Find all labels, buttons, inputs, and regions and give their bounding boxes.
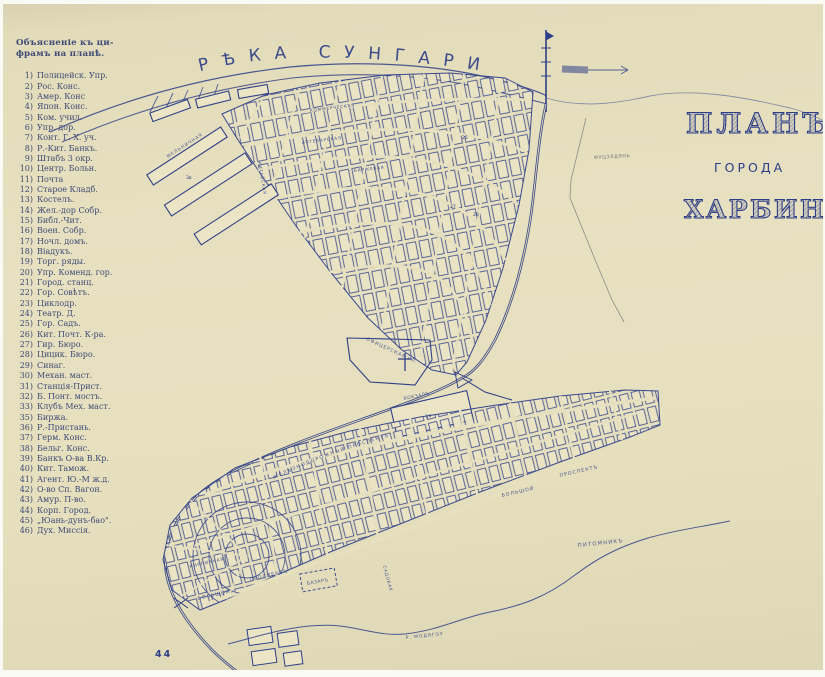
legend-item-label: Центр. Больн. (37, 164, 97, 174)
legend-item-label: Город. станц. (37, 278, 94, 288)
legend-item-label: О-во Сп. Вагон. (37, 485, 102, 495)
legend-item-number: 10) (12, 164, 33, 174)
legend-item: 30) Механ. маст. (12, 371, 134, 381)
legend-item: 27) Гир. Бюро. (12, 340, 134, 350)
legend-item-number: 13) (12, 195, 33, 205)
legend-item-number: 40) (12, 464, 33, 474)
legend-item: 45) „Юань-дунъ-бао". (12, 516, 134, 526)
legend-item-number: 8) (12, 144, 33, 154)
legend-item-label: Гор. Садъ. (37, 319, 81, 329)
svg-text:25: 25 (462, 135, 468, 141)
svg-text:27: 27 (450, 204, 456, 210)
legend-item-label: Агент. Ю.-М ж.д. (37, 475, 110, 485)
legend-item: 44) Корп. Город. (12, 506, 134, 516)
legend-item-number: 24) (12, 309, 33, 319)
scanned-map-page: РѢКА СУНГАРИ (0, 0, 825, 677)
legend-item-number: 3) (12, 92, 33, 102)
legend-item-label: Амер. Конс (37, 92, 85, 102)
legend-item-number: 26) (12, 330, 33, 340)
title-line2: ГОРОДА (714, 160, 785, 175)
legend-item-number: 23) (12, 299, 33, 309)
legend-item-label: Жел.-дор Собр. (37, 206, 102, 216)
legend-item: 16) Воен. Собр. (12, 226, 134, 236)
legend-item-label: Театр. Д. (37, 309, 76, 319)
legend-item-label: Цицик. Бюро. (37, 350, 95, 360)
legend-item-label: Р.-Пристань. (37, 423, 91, 433)
legend-item-number: 30) (12, 371, 33, 381)
legend-item-label: Штабъ 3 окр. (37, 154, 93, 164)
legend-item-number: 1) (12, 71, 33, 81)
legend-item: 33) Клубъ Мех. маст. (12, 402, 134, 412)
legend-item-number: 16) (12, 226, 33, 236)
legend-item-label: Упр. Коменд. гор. (37, 268, 112, 278)
svg-text:ПИТОМНИКЪ: ПИТОМНИКЪ (578, 538, 624, 549)
legend-item-label: Циклодр. (37, 299, 77, 309)
map-legend: Объясненіе къ ци- фрамъ на планѣ. 1) Пол… (12, 38, 134, 537)
legend-item-label: Віадукъ. (37, 247, 72, 257)
legend-item: 5) Ком. учил. (12, 113, 134, 123)
district-new-town (163, 390, 660, 625)
legend-item-number: 41) (12, 475, 33, 485)
legend-item-number: 43) (12, 495, 33, 505)
legend-title: Объясненіе къ ци- фрамъ на планѣ. (16, 38, 134, 59)
legend-item-number: 29) (12, 361, 33, 371)
title-block: ПЛАНЪ ГОРОДА ХАРБИНА (684, 107, 825, 224)
legend-item: 20) Упр. Коменд. гор. (12, 268, 134, 278)
legend-item-label: Корп. Город. (37, 506, 91, 516)
legend-item-number: 22) (12, 288, 33, 298)
legend-item: 17) Ночл. домъ. (12, 237, 134, 247)
legend-item: 9) Штабъ 3 окр. (12, 154, 134, 164)
legend-item-label: Б. Понт. мостъ. (37, 392, 102, 402)
legend-item: 10) Центр. Больн. (12, 164, 134, 174)
legend-item-number: 32) (12, 392, 33, 402)
legend-item: 1) Полицейск. Упр. (12, 71, 134, 81)
legend-item-number: 35) (12, 413, 33, 423)
title-line1: ПЛАНЪ (686, 107, 825, 140)
legend-item: 28) Цицик. Бюро. (12, 350, 134, 360)
legend-item: 31) Станція-Прист. (12, 382, 134, 392)
legend-item: 40) Кит. Тамож. (12, 464, 134, 474)
river-label: РѢКА СУНГАРИ (196, 42, 494, 77)
legend-item-number: 2) (12, 82, 33, 92)
legend-item-number: 38) (12, 444, 33, 454)
legend-item-label: Рос. Конс. (37, 82, 80, 92)
legend-item: 43) Амур. П-во. (12, 495, 134, 505)
legend-item-number: 6) (12, 123, 33, 133)
legend-item-number: 5) (12, 113, 33, 123)
legend-item-label: Герм. Конс. (37, 433, 87, 443)
legend-item: 46) Дух. Миссія. (12, 526, 134, 536)
legend-item-label: Упр. дор. (37, 123, 76, 133)
legend-item: 13) Костелъ. (12, 195, 134, 205)
legend-item-number: 11) (12, 175, 33, 185)
legend-item: 12) Старое Кладб. (12, 185, 134, 195)
legend-item: 6) Упр. дор. (12, 123, 134, 133)
legend-item: 2) Рос. Конс. (12, 82, 134, 92)
legend-item: 3) Амер. Конс (12, 92, 134, 102)
legend-item-label: „Юань-дунъ-бао". (37, 516, 111, 526)
legend-item: 36) Р.-Пристань. (12, 423, 134, 433)
legend-item: 24) Театр. Д. (12, 309, 134, 319)
fudziadian-boundary (570, 118, 624, 322)
legend-item-number: 15) (12, 216, 33, 226)
page-number: 44 (155, 649, 172, 660)
legend-item-label: Костелъ. (37, 195, 74, 205)
legend-item: 21) Город. станц. (12, 278, 134, 288)
legend-item: 23) Циклодр. (12, 299, 134, 309)
scan-border-top (0, 0, 825, 4)
legend-item-number: 36) (12, 423, 33, 433)
legend-item-number: 14) (12, 206, 33, 216)
legend-item-label: Торг. ряды. (37, 257, 86, 267)
title-line3: ХАРБИНА (684, 195, 825, 224)
legend-item: 29) Синаг. (12, 361, 134, 371)
legend-item-label: Механ. маст. (37, 371, 92, 381)
legend-item: 22) Гор. Совѣтъ. (12, 288, 134, 298)
legend-item-number: 45) (12, 516, 33, 526)
legend-item-label: Гор. Совѣтъ. (37, 288, 90, 298)
legend-item-label: Кит. Почт. К-ра. (37, 330, 106, 340)
svg-text:ПРОСПЕКТЪ: ПРОСПЕКТЪ (559, 464, 599, 479)
legend-item-label: Биржа. (37, 413, 68, 423)
legend-item: 25) Гор. Садъ. (12, 319, 134, 329)
legend-item-number: 7) (12, 133, 33, 143)
legend-item-label: Станція-Прист. (37, 382, 102, 392)
legend-item-number: 18) (12, 247, 33, 257)
legend-item: 11) Почта (12, 175, 134, 185)
legend-item: 7) Конт. Г. Х. уч. (12, 133, 134, 143)
legend-item-label: Амур. П-во. (37, 495, 86, 505)
legend-item-number: 20) (12, 268, 33, 278)
legend-item-label: Клубъ Мех. маст. (37, 402, 110, 412)
legend-item-label: Старое Кладб. (37, 185, 98, 195)
legend-item-number: 46) (12, 526, 33, 536)
legend-item-number: 31) (12, 382, 33, 392)
svg-text:БАЗАРЪ: БАЗАРЪ (306, 577, 329, 587)
legend-item-number: 25) (12, 319, 33, 329)
svg-text:28: 28 (473, 212, 479, 218)
legend-item: 37) Герм. Конс. (12, 433, 134, 443)
legend-item-number: 17) (12, 237, 33, 247)
legend-item: 15) Библ.-Чит. (12, 216, 134, 226)
flow-arrow-icon (562, 66, 628, 74)
scan-border-bottom (0, 670, 825, 677)
legend-item-label: Р.-Кит. Банкъ. (37, 144, 97, 154)
legend-item-label: Гир. Бюро. (37, 340, 83, 350)
legend-item-number: 37) (12, 433, 33, 443)
legend-item-label: Бельг. Конс. (37, 444, 90, 454)
legend-item: 41) Агент. Ю.-М ж.д. (12, 475, 134, 485)
legend-item-number: 4) (12, 102, 33, 112)
legend-item-label: Ком. учил. (37, 113, 82, 123)
legend-item-label: Япон. Конс. (37, 102, 87, 112)
legend-item-label: Ночл. домъ. (37, 237, 88, 247)
legend-item-number: 27) (12, 340, 33, 350)
legend-item-label: Кит. Тамож. (37, 464, 89, 474)
fudziadian-label: ФУЦЗЯДЯНЬ (594, 153, 631, 161)
legend-item-number: 39) (12, 454, 33, 464)
district-pristan (222, 73, 533, 375)
legend-item-number: 44) (12, 506, 33, 516)
legend-item-label: Полицейск. Упр. (37, 71, 108, 81)
legend-item-label: Дух. Миссія. (37, 526, 90, 536)
legend-item-label: Синаг. (37, 361, 65, 371)
legend-item-number: 21) (12, 278, 33, 288)
legend-item: 39) Банкъ О-ва В.Кр. (12, 454, 134, 464)
legend-item-number: 42) (12, 485, 33, 495)
legend-item: 26) Кит. Почт. К-ра. (12, 330, 134, 340)
legend-item: 38) Бельг. Конс. (12, 444, 134, 454)
legend-item-number: 12) (12, 185, 33, 195)
legend-item: 35) Биржа. (12, 413, 134, 423)
legend-item: 19) Торг. ряды. (12, 257, 134, 267)
legend-items: 1) Полицейск. Упр. 2) Рос. Конс. 3) Амер… (12, 71, 134, 536)
legend-item: 8) Р.-Кит. Банкъ. (12, 144, 134, 154)
legend-item: 14) Жел.-дор Собр. (12, 206, 134, 216)
legend-item-label: Воен. Собр. (37, 226, 86, 236)
legend-item-number: 33) (12, 402, 33, 412)
scan-border-left (0, 0, 3, 677)
legend-item-number: 19) (12, 257, 33, 267)
legend-item-label: Конт. Г. Х. уч. (37, 133, 97, 143)
legend-item: 4) Япон. Конс. (12, 102, 134, 112)
legend-item: 42) О-во Сп. Вагон. (12, 485, 134, 495)
legend-item-label: Банкъ О-ва В.Кр. (37, 454, 109, 464)
svg-text:Р. МОДЯГОУ: Р. МОДЯГОУ (406, 631, 444, 641)
svg-text:3в: 3в (186, 175, 192, 181)
svg-text:САДОВАЯ: САДОВАЯ (382, 565, 394, 592)
legend-item-label: Почта (37, 175, 63, 185)
legend-item: 18) Віадукъ. (12, 247, 134, 257)
legend-item-label: Библ.-Чит. (37, 216, 82, 226)
legend-item-number: 9) (12, 154, 33, 164)
legend-item: 32) Б. Понт. мостъ. (12, 392, 134, 402)
legend-item-number: 28) (12, 350, 33, 360)
